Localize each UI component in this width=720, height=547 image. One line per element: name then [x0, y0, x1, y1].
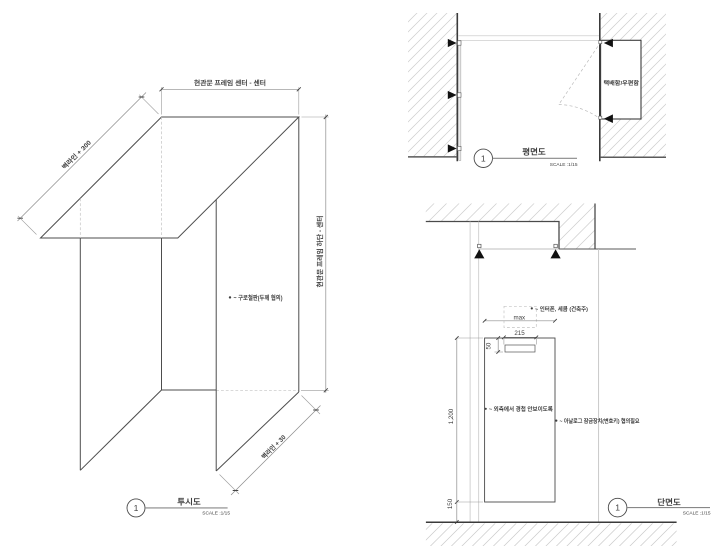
svg-text:215: 215 — [514, 330, 525, 337]
svg-text:50: 50 — [486, 342, 493, 349]
svg-text:SCALE :1/15: SCALE :1/15 — [683, 510, 711, 516]
svg-text:~ 아날로그 잠금장치(변호키) 협의필요: ~ 아날로그 잠금장치(변호키) 협의필요 — [560, 417, 640, 425]
svg-text:1,200: 1,200 — [448, 408, 455, 424]
svg-text:1: 1 — [134, 503, 139, 513]
svg-text:현관문 프레임 하단 - 센터: 현관문 프레임 하단 - 센터 — [315, 215, 324, 287]
svg-text:~ 외측에서 경첩 안보이도록: ~ 외측에서 경첩 안보이도록 — [489, 405, 553, 413]
svg-text:max: max — [513, 315, 526, 322]
svg-text:평면도: 평면도 — [522, 146, 546, 156]
svg-text:단면도: 단면도 — [657, 497, 681, 507]
svg-text:1: 1 — [615, 503, 620, 513]
svg-text:벽라인 + 300: 벽라인 + 300 — [60, 138, 94, 172]
svg-text:SCALE :1/15: SCALE :1/15 — [202, 511, 230, 517]
svg-text:벽라인 + 30: 벽라인 + 30 — [259, 432, 288, 461]
svg-text:~ 구로철판(두께 협의): ~ 구로철판(두께 협의) — [234, 294, 283, 302]
svg-text:~ 인터폰, 세콤 (건축주): ~ 인터폰, 세콤 (건축주) — [535, 305, 588, 313]
svg-text:현관문 프레임 센터 - 센터: 현관문 프레임 센터 - 센터 — [194, 78, 266, 87]
svg-text:1: 1 — [481, 153, 486, 163]
svg-text:투시도: 투시도 — [177, 498, 201, 507]
svg-text:150: 150 — [447, 498, 454, 509]
svg-text:택배함/우편함: 택배함/우편함 — [604, 79, 640, 87]
svg-text:SCALE :1/15: SCALE :1/15 — [550, 162, 578, 168]
